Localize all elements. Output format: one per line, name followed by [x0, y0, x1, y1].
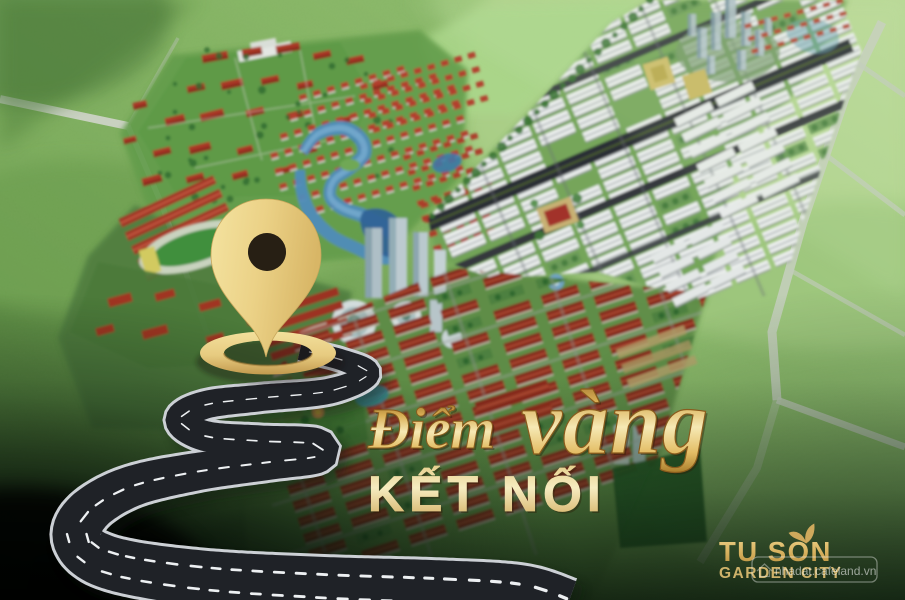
svg-text:nhadat.cafeland.vn: nhadat.cafeland.vn	[775, 564, 876, 578]
svg-text:Điểm: Điểm	[367, 396, 495, 461]
svg-text:TU SON: TU SON	[719, 536, 832, 567]
svg-text:KẾT NỐI: KẾT NỐI	[368, 465, 606, 522]
svg-text:vàng: vàng	[521, 371, 709, 473]
